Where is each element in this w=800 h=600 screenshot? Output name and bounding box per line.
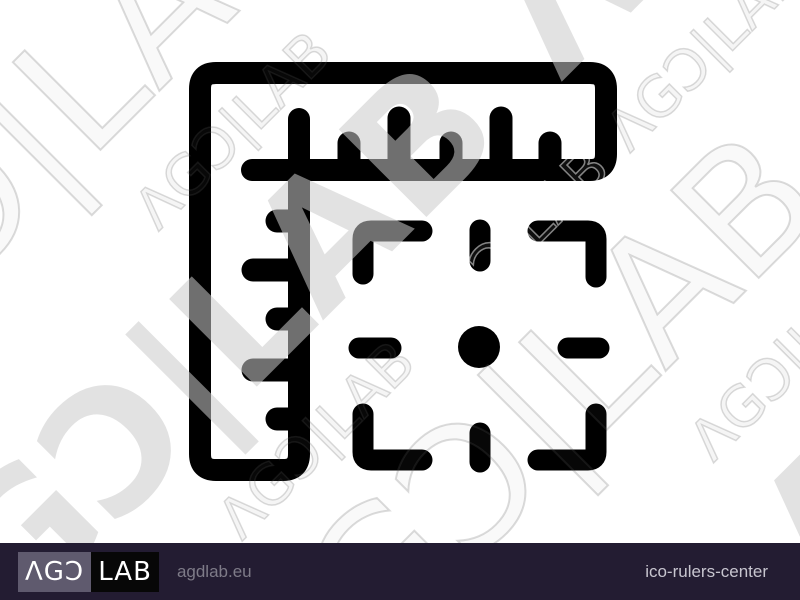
center-dot xyxy=(458,326,500,368)
footer-bar: ΛGƆ LAB agdlab.eu ico-rulers-center xyxy=(0,543,800,600)
agdlab-logo: ΛGƆ LAB xyxy=(18,552,159,592)
dash-corner-top-right xyxy=(538,231,596,277)
icon-strokes xyxy=(200,73,606,470)
asset-name: ico-rulers-center xyxy=(645,562,768,582)
rulers-center-icon xyxy=(0,0,800,543)
logo-agd-box: ΛGƆ xyxy=(18,552,91,592)
image-canvas: ΛGƆ|LABΛGƆ|LABΛGƆ|LABΛGƆ|LABΛGƆ|LABΛGƆ|L… xyxy=(0,0,800,600)
dash-corner-bottom-right xyxy=(538,414,596,460)
top-ruler-ticks xyxy=(349,118,550,164)
left-ruler-ticks xyxy=(253,221,293,419)
site-url: agdlab.eu xyxy=(177,562,252,582)
dash-corner-bottom-left xyxy=(363,414,422,460)
logo-lab-box: LAB xyxy=(91,552,159,592)
dash-corner-top-left xyxy=(363,231,422,274)
